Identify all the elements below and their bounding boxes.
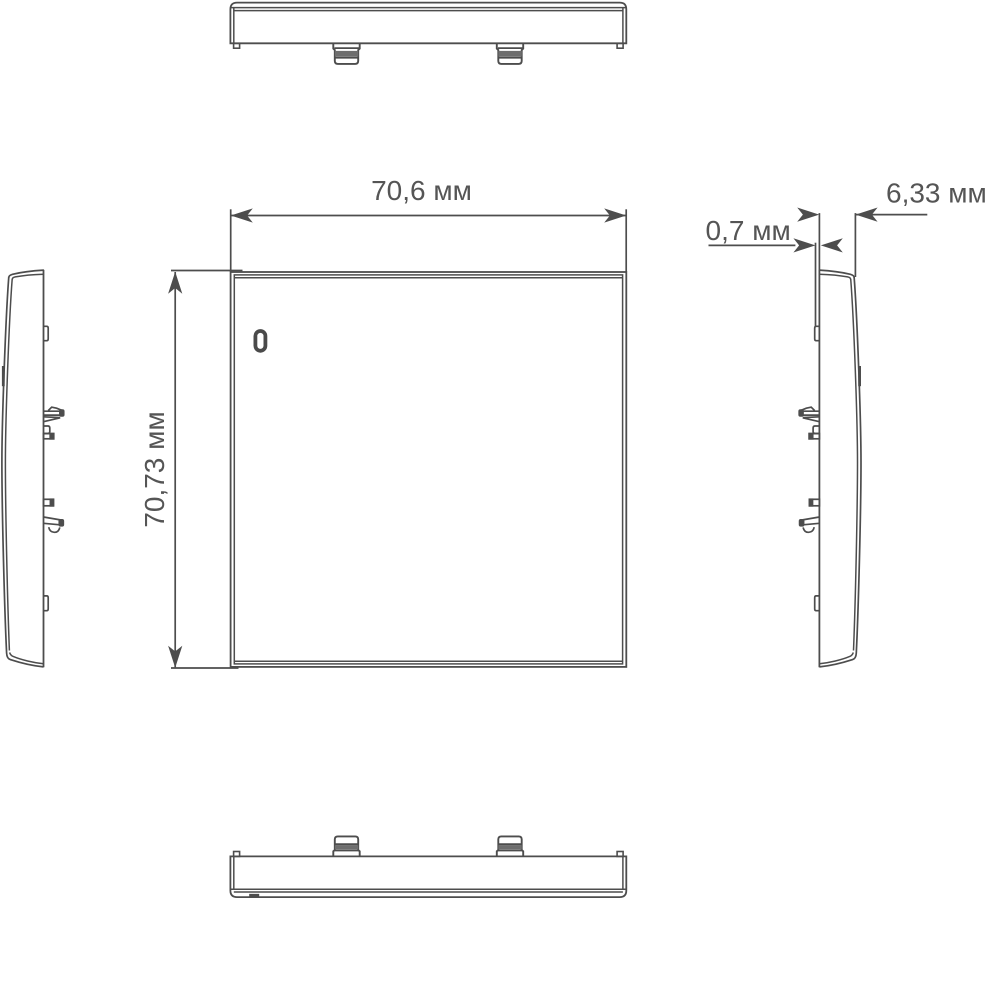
svg-text:70,6 мм: 70,6 мм <box>371 175 472 206</box>
svg-text:70,73 мм: 70,73 мм <box>139 411 170 527</box>
svg-text:6,33 мм: 6,33 мм <box>886 177 987 208</box>
svg-text:0,7 мм: 0,7 мм <box>706 215 791 246</box>
